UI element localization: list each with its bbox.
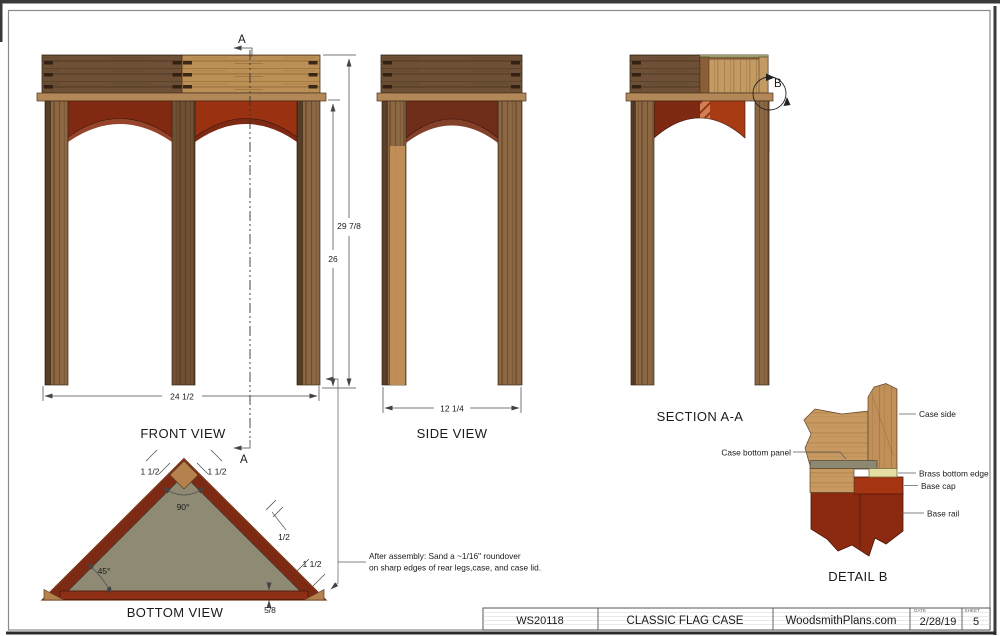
detail-marker: B [774, 78, 782, 90]
drawing-sheet: A A 24 1/2 26 29 7/8 FRONT VIEW [0, 0, 1000, 636]
dim-base-angle: 45° [98, 566, 111, 576]
detail-base-cap [854, 477, 903, 494]
section-glass-edge [700, 55, 768, 57]
plan-number: WS20118 [516, 615, 564, 627]
detail-case-bottom [804, 409, 868, 469]
detail-brass-edge [869, 469, 897, 478]
dim-side-width: 12 1/4 [440, 404, 464, 414]
section-left-leg-shade [631, 101, 636, 385]
bottom-view-label: BOTTOM VIEW [127, 605, 224, 620]
note-line-2: on sharp edges of rear legs,case, and ca… [369, 563, 541, 573]
section-view-label: SECTION A-A [657, 409, 744, 424]
detail-case-edge-strip [810, 469, 854, 493]
case-side-panel [381, 55, 522, 93]
side-table-top [377, 93, 526, 101]
callout-brass-bottom-edge: Brass bottom edge [919, 469, 989, 479]
dim-side-thickness: 1/2 [278, 532, 290, 542]
side-right-leg [498, 101, 522, 385]
callout-base-cap: Base cap [921, 481, 956, 491]
callout-case-bottom-panel: Case bottom panel [721, 448, 791, 458]
side-view-label: SIDE VIEW [417, 426, 488, 441]
dim-corner: 1 1/2 [303, 559, 322, 569]
drawing-canvas: A A 24 1/2 26 29 7/8 FRONT VIEW [0, 0, 1000, 636]
callout-case-side: Case side [919, 409, 956, 419]
section-apron [654, 101, 745, 143]
front-view-label: FRONT VIEW [140, 426, 226, 441]
dim-table-height: 26 [328, 254, 338, 264]
detail-b-view: Case side Case bottom panel Brass bottom… [721, 384, 989, 585]
front-left-leg-shade [45, 101, 51, 385]
base-rail-bottom [60, 591, 308, 600]
dim-base-strip: 5/8 [264, 605, 276, 615]
section-marker-bottom: A [240, 454, 248, 466]
note-line-1: After assembly: Sand a ~1/16" roundover [369, 551, 521, 561]
date-label: DATE [914, 608, 926, 613]
side-dimensions: 12 1/4 [383, 387, 521, 414]
sheet-label: SHEET [965, 608, 981, 613]
section-arrow-bottom [234, 440, 250, 448]
section-case-divider [700, 57, 709, 93]
bottom-view: 1 1/2 1 1/2 90° 45° 1/2 1 1/2 5/8 BOTTOM… [42, 450, 326, 620]
detail-b-label: DETAIL B [828, 569, 888, 584]
rear-apex-leg-shade [172, 101, 195, 385]
table-top [37, 93, 326, 101]
frame-right-shadow [994, 6, 997, 635]
dim-total-height: 29 7/8 [337, 221, 361, 231]
detail-base-rail [811, 493, 903, 557]
plan-title: CLASSIC FLAG CASE [627, 615, 744, 627]
section-right-leg [755, 101, 769, 385]
dim-apex-right: 1 1/2 [208, 467, 227, 477]
title-block: WS20118 CLASSIC FLAG CASE WoodsmithPlans… [483, 608, 990, 630]
frame-bottom-shadow [6, 632, 996, 635]
plan-date: 2/28/19 [920, 616, 957, 628]
dim-apex-angle: 90° [177, 502, 190, 512]
detail-bottom-panel [810, 461, 877, 469]
dim-apex-left: 1 1/2 [141, 467, 160, 477]
side-left-leg-inner-face [390, 146, 405, 385]
dim-front-width: 24 1/2 [170, 392, 194, 402]
section-table-top [626, 93, 773, 101]
detail-b-arrow-side [784, 97, 791, 106]
frame-top-shadow [0, 0, 1000, 4]
side-view: 12 1/4 SIDE VIEW [377, 55, 526, 441]
assembly-note: After assembly: Sand a ~1/16" roundover … [326, 379, 541, 589]
section-marker-top: A [238, 34, 246, 46]
sheet-number: 5 [973, 616, 979, 628]
note-leader-lower [331, 562, 338, 589]
case-front-left-panel [42, 55, 182, 93]
publisher-website: WoodsmithPlans.com [786, 615, 897, 627]
section-case-interior [700, 55, 768, 93]
side-left-leg-shade [382, 101, 388, 385]
frame-left-shadow [0, 0, 3, 42]
front-view: A A 24 1/2 26 29 7/8 FRONT VIEW [37, 34, 361, 466]
section-view: B SECTION A-A [626, 55, 791, 424]
front-right-leg-shade [297, 101, 303, 385]
note-leader-upper [326, 379, 366, 562]
callout-base-rail: Base rail [927, 509, 959, 519]
case-front-right-panel [182, 55, 320, 93]
